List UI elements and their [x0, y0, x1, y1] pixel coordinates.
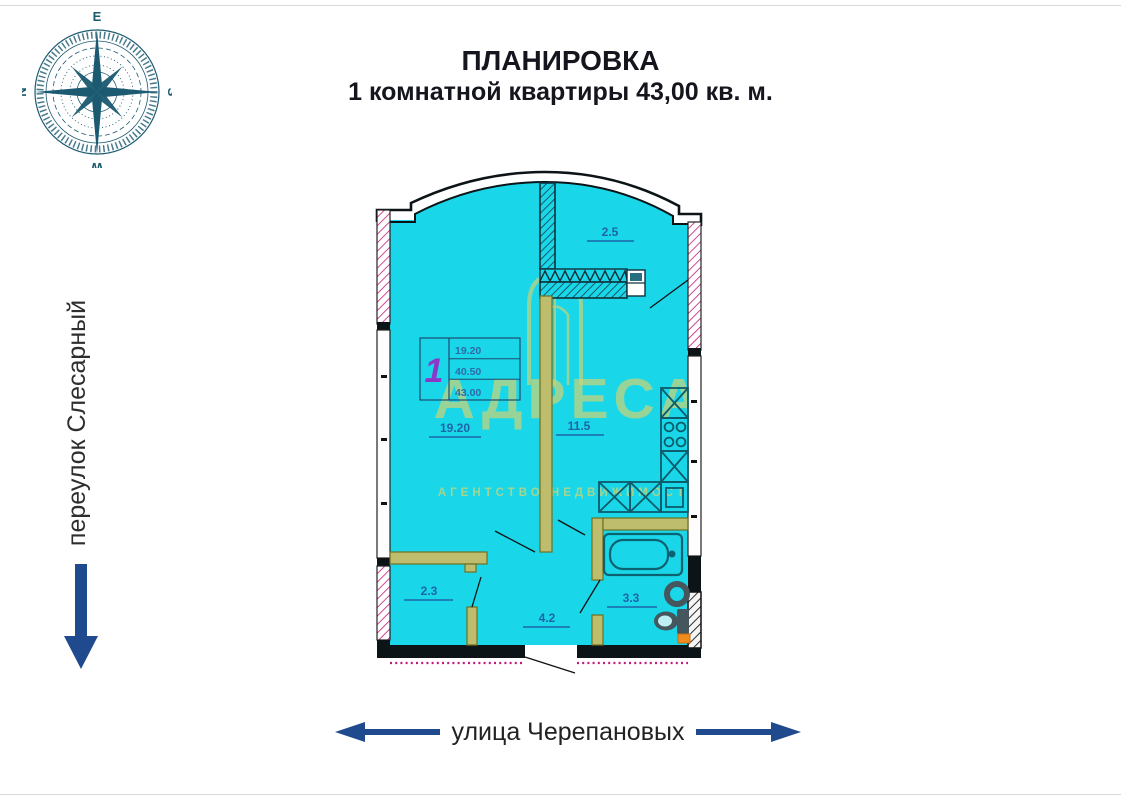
stamp-living-area: 19.20 [455, 345, 481, 357]
stamp-area-no-balcony: 40.50 [455, 366, 481, 378]
towel-rail-icon [678, 634, 690, 643]
bottom-border-line [0, 794, 1121, 795]
room-area-label-hallway: 4.2 [539, 611, 556, 625]
street-bottom: улица Черепановых [322, 713, 814, 751]
street-label-left: переулок Слесарный [57, 273, 97, 573]
title-line1: ПЛАНИРОВКА [0, 46, 1121, 76]
room-area-label-living: 19.20 [440, 421, 470, 435]
stamp-rooms-count: 1 [425, 352, 444, 390]
floor-plan: АДРЕСА АГЕНТСТВО НЕДВИЖИМОСТИ [373, 170, 705, 676]
room-area-label-bathroom: 3.3 [623, 591, 640, 605]
room-area-label-kitchen: 11.5 [568, 419, 591, 433]
stamp-total-area: 43.00 [455, 387, 481, 399]
arrow-right-icon [696, 721, 801, 743]
arrow-left-icon [335, 721, 440, 743]
arrow-down-icon [63, 564, 99, 670]
room-area-label-balcony: 2.5 [602, 225, 619, 239]
room-area-label-closet: 2.3 [421, 584, 438, 598]
compass-letter-bottom: W [90, 160, 103, 168]
page-title: ПЛАНИРОВКА 1 комнатной квартиры 43,00 кв… [0, 46, 1121, 108]
street-label-bottom: улица Черепановых [452, 718, 685, 747]
compass-letter-top: E [93, 9, 102, 24]
title-line2: 1 комнатной квартиры 43,00 кв. м. [0, 76, 1121, 108]
page: E S W N ПЛАНИРОВКА 1 комнатной квартиры … [0, 0, 1121, 800]
top-border-line [0, 5, 1121, 6]
